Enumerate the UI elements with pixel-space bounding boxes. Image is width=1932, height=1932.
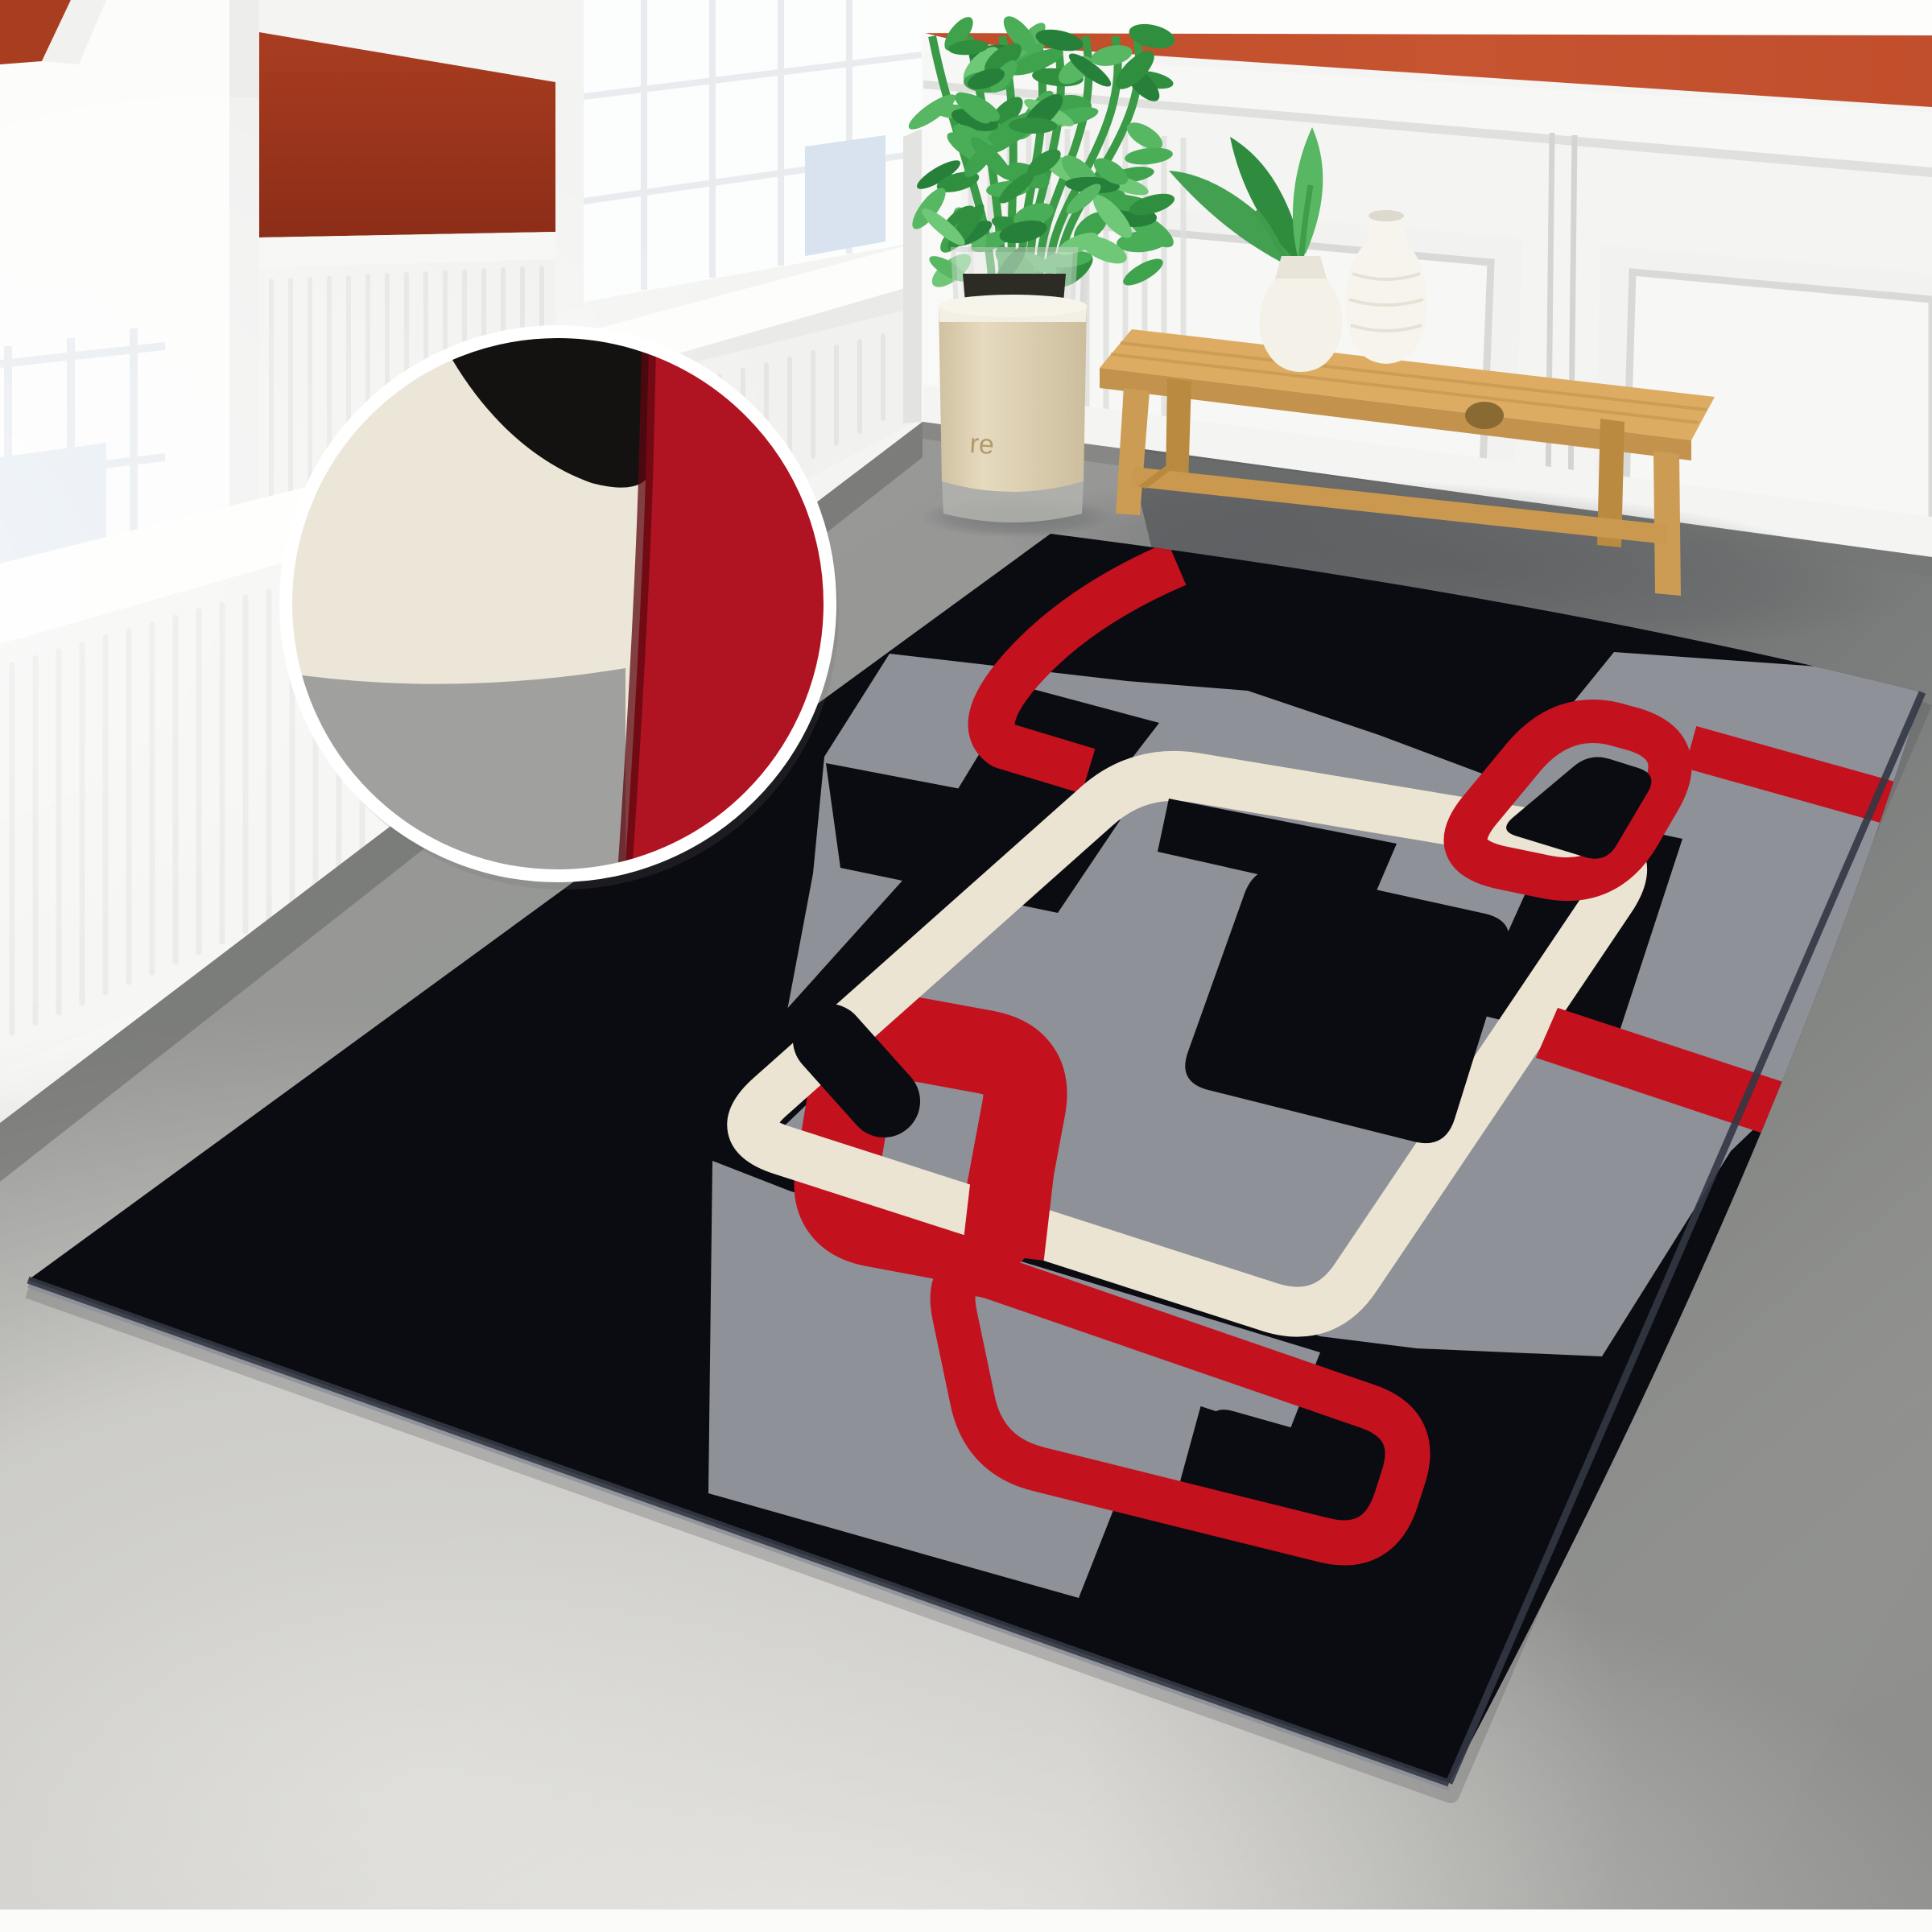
svg-text:re: re <box>968 428 995 460</box>
